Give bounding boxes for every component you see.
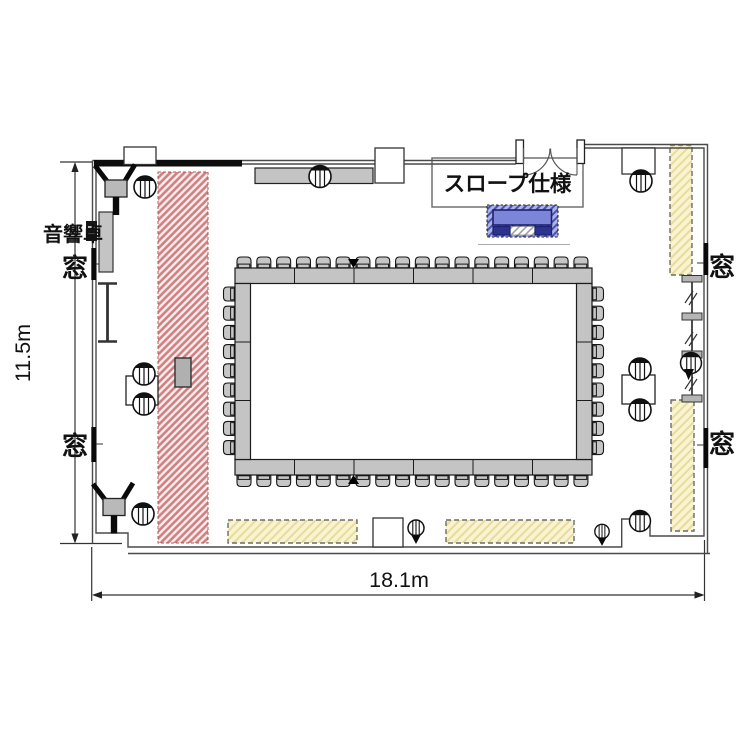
chair-icon <box>257 476 271 487</box>
arrow-left-icon <box>92 591 102 598</box>
label-slope-spec: スロープ仕様 <box>444 171 572 196</box>
chair-icon <box>593 364 604 378</box>
chair-icon <box>593 325 604 339</box>
yellow-zone-right-top <box>670 145 692 275</box>
pillar-top-left <box>124 147 156 165</box>
arrow-down-icon <box>71 534 78 544</box>
window-marker-right-bottom <box>704 428 709 468</box>
chair-icon <box>132 503 154 525</box>
chair-icon <box>514 257 528 268</box>
chair-icon <box>376 476 390 487</box>
chair-icon <box>593 402 604 416</box>
chair-icon <box>277 476 291 487</box>
chair-icon <box>134 176 156 198</box>
window-marker-right-top <box>704 243 709 275</box>
label-window-right-bottom: 窓 <box>709 429 735 459</box>
chair-icon <box>316 476 330 487</box>
chair-icon <box>237 257 251 268</box>
chair-icon <box>224 441 235 455</box>
pillar-bottom-center <box>373 518 403 547</box>
conference-chairs <box>224 257 604 487</box>
arrow-right-icon <box>695 591 705 598</box>
chair-icon <box>593 383 604 397</box>
chair-icon <box>593 441 604 455</box>
partition-track <box>682 276 702 403</box>
chair-icon <box>133 393 155 415</box>
chair-icon <box>224 364 235 378</box>
chair-icon <box>495 257 509 268</box>
chair-icon <box>296 257 310 268</box>
conference-table <box>235 268 592 475</box>
table-band-left <box>235 284 251 460</box>
yellow-zone-bottom-left <box>228 520 357 543</box>
chair-icon <box>224 306 235 320</box>
dim-width-label: 18.1m <box>369 568 429 592</box>
chair-icon <box>224 421 235 435</box>
chair-icon <box>534 257 548 268</box>
label-audio-console: 音響卓 <box>43 222 103 246</box>
window-marker-left-top <box>91 248 96 280</box>
arrow-up-icon <box>71 162 78 172</box>
chair-icon <box>277 257 291 268</box>
chair-icon <box>376 257 390 268</box>
chair-icon <box>629 399 651 421</box>
floor-plan-page: スロープ仕様 音響卓 窓 窓 窓 窓 11.5m 18.1m <box>0 0 750 750</box>
chair-icon <box>574 257 588 268</box>
floor-plan-svg: スロープ仕様 音響卓 窓 窓 窓 窓 11.5m 18.1m <box>0 0 750 750</box>
mic-stand-icon <box>595 524 609 546</box>
chair-icon <box>593 421 604 435</box>
pillar-top-center <box>375 148 404 183</box>
equipment-box-in-red-zone <box>175 358 191 387</box>
door-post-right <box>577 140 585 164</box>
chair-icon <box>495 476 509 487</box>
chair-icon <box>296 476 310 487</box>
head-table <box>487 205 558 237</box>
chair-icon <box>257 257 271 268</box>
chair-icon <box>396 476 410 487</box>
yellow-zone-right-bottom <box>671 400 694 531</box>
chair-icon <box>593 287 604 301</box>
chair-icon <box>224 325 235 339</box>
mic-stand-icon <box>408 520 424 544</box>
speaker-icon <box>93 483 133 534</box>
chair-icon <box>336 257 350 268</box>
chair-icon <box>336 476 350 487</box>
chair-icon <box>356 257 370 268</box>
partition-hatch-marks <box>685 291 697 391</box>
chair-icon <box>415 257 429 268</box>
label-window-left-bottom: 窓 <box>62 431 88 461</box>
chair-icon <box>455 476 469 487</box>
chair-icon <box>514 476 528 487</box>
label-window-left-top: 窓 <box>62 253 88 283</box>
screen-symbol <box>98 284 117 342</box>
chair-icon <box>224 402 235 416</box>
chair-icon <box>224 345 235 359</box>
chair-icon <box>415 476 429 487</box>
chair-icon <box>133 363 155 385</box>
chair-icon <box>630 170 652 192</box>
chair-icon <box>554 257 568 268</box>
dim-height-label: 11.5m <box>11 324 35 382</box>
chair-icon <box>237 476 251 487</box>
thick-wall-segment <box>94 160 242 167</box>
chair-icon <box>554 476 568 487</box>
chair-icon <box>629 358 651 380</box>
chair-icon <box>356 476 370 487</box>
label-window-right-top: 窓 <box>709 252 735 282</box>
door-post-left <box>516 140 524 164</box>
chair-icon <box>224 287 235 301</box>
chair-icon <box>574 476 588 487</box>
speaker-icon <box>95 165 135 216</box>
chair-icon <box>593 345 604 359</box>
window-marker-left-bottom <box>91 427 96 462</box>
table-band-right <box>577 284 593 460</box>
chair-icon <box>475 476 489 487</box>
chair-icon <box>475 257 489 268</box>
chair-icon <box>435 257 449 268</box>
chair-icon <box>435 476 449 487</box>
chair-icon <box>309 166 331 188</box>
chair-icon <box>455 257 469 268</box>
chair-icon <box>630 511 651 532</box>
chair-icon <box>224 383 235 397</box>
chair-icon <box>396 257 410 268</box>
chair-icon <box>593 306 604 320</box>
chair-icon <box>316 257 330 268</box>
chair-icon <box>534 476 548 487</box>
yellow-zone-bottom-right <box>446 520 574 543</box>
